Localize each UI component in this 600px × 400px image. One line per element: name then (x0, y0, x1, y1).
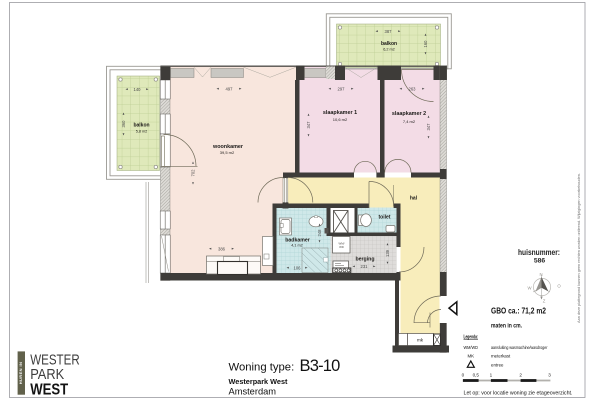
svg-text:360: 360 (121, 120, 126, 128)
svg-text:7,4 m2: 7,4 m2 (403, 119, 416, 124)
svg-text:balkon: balkon (381, 41, 397, 47)
svg-text:106: 106 (294, 265, 302, 270)
svg-text:4,1 m2: 4,1 m2 (291, 243, 303, 247)
svg-text:386: 386 (218, 246, 226, 251)
svg-text:3: 3 (548, 373, 551, 378)
svg-text:slaapkamer 1: slaapkamer 1 (323, 110, 357, 116)
svg-text:toilet: toilet (379, 214, 391, 220)
svg-text:Aan deze plattegrond kunnen ge: Aan deze plattegrond kunnen geen rechten… (577, 173, 581, 323)
svg-text:387: 387 (385, 29, 393, 34)
svg-text:263: 263 (409, 86, 417, 91)
svg-text:Westerpark West: Westerpark West (229, 377, 289, 386)
svg-text:maten in cm.: maten in cm. (491, 323, 522, 329)
svg-text:160: 160 (423, 40, 428, 48)
svg-text:balkon: balkon (133, 122, 149, 128)
svg-text:702: 702 (191, 169, 196, 177)
svg-text:Amsterdam: Amsterdam (229, 386, 277, 396)
svg-text:297: 297 (338, 86, 346, 91)
svg-text:slaapkamer 2: slaapkamer 2 (392, 111, 426, 117)
svg-text:1: 1 (490, 373, 493, 378)
svg-text:347: 347 (426, 123, 431, 131)
svg-text:WEST: WEST (30, 382, 68, 399)
svg-text:N: N (539, 272, 542, 277)
svg-text:39,5 m2: 39,5 m2 (220, 150, 235, 155)
svg-text:140: 140 (134, 87, 142, 92)
svg-text:Let op: voor locatie woning z: Let op: voor locatie woning zie etageove… (464, 391, 573, 397)
svg-text:347: 347 (306, 121, 311, 129)
svg-text:497: 497 (226, 86, 234, 91)
svg-text:WM/WD: WM/WD (464, 345, 479, 350)
svg-text:WD: WD (339, 245, 344, 249)
svg-text:huisnummer:: huisnummer: (518, 248, 560, 257)
svg-text:10,6 m2: 10,6 m2 (333, 117, 348, 122)
svg-text:Z: Z (543, 298, 546, 303)
svg-text:6,2 m2: 6,2 m2 (383, 47, 395, 51)
svg-text:0,5: 0,5 (473, 373, 480, 378)
svg-text:231: 231 (361, 264, 369, 269)
svg-text:248: 248 (317, 229, 322, 237)
svg-text:MK: MK (468, 353, 475, 358)
svg-text:HUREN IN: HUREN IN (18, 362, 23, 385)
svg-text:5,8 m2: 5,8 m2 (136, 129, 148, 133)
svg-text:berging: berging (355, 256, 374, 262)
svg-text:GBO ca.: 71,2 m2: GBO ca.: 71,2 m2 (491, 307, 546, 316)
svg-text:2: 2 (519, 373, 522, 378)
svg-text:PARK: PARK (30, 367, 64, 383)
svg-text:586: 586 (534, 257, 546, 264)
svg-text:Woning type:: Woning type: (229, 361, 295, 373)
svg-text:meterkast: meterkast (491, 353, 511, 358)
svg-text:mk: mk (417, 337, 424, 342)
svg-text:139: 139 (385, 249, 390, 257)
svg-text:entree: entree (491, 362, 504, 367)
svg-text:0: 0 (462, 373, 465, 378)
svg-text:B3-10: B3-10 (300, 357, 341, 375)
svg-text:Legenda:: Legenda: (464, 334, 479, 340)
svg-text:hal: hal (410, 195, 418, 201)
svg-text:aansluiting wasmachine/wasdrog: aansluiting wasmachine/wasdroger (491, 345, 548, 350)
